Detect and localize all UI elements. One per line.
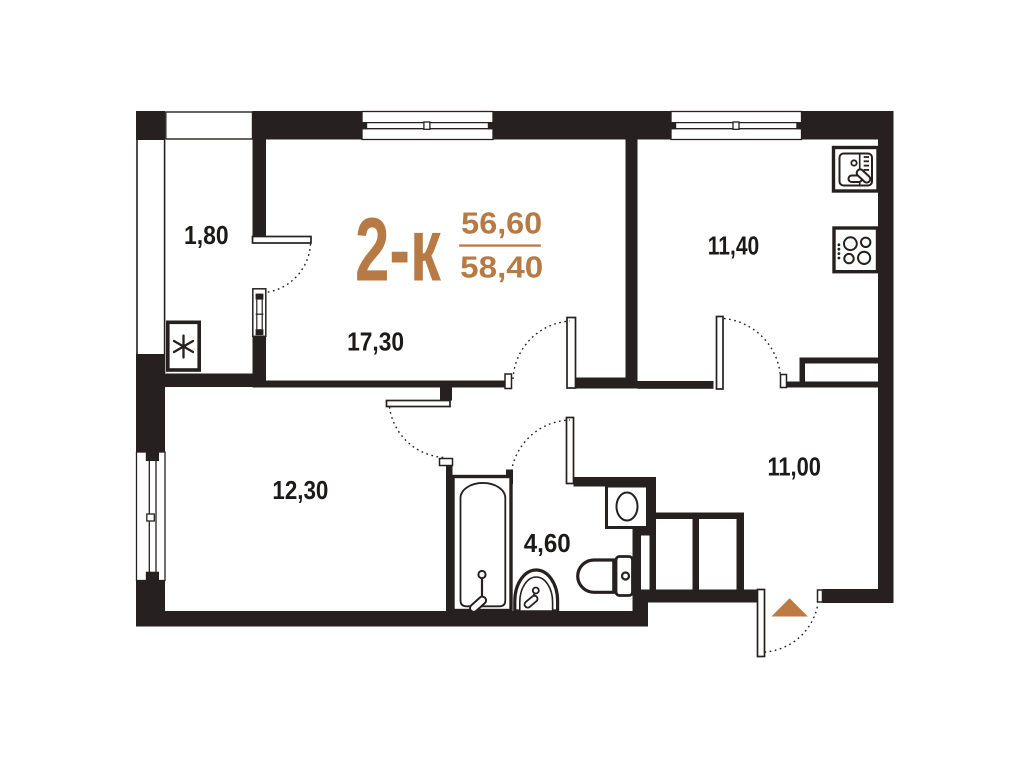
svg-text:4,60: 4,60 <box>524 528 571 558</box>
svg-text:12,30: 12,30 <box>272 475 328 505</box>
svg-text:17,30: 17,30 <box>347 327 404 357</box>
svg-text:56,60: 56,60 <box>461 206 542 241</box>
svg-text:11,40: 11,40 <box>708 231 760 261</box>
svg-text:58,40: 58,40 <box>460 250 543 285</box>
svg-text:1,80: 1,80 <box>184 220 229 250</box>
svg-text:11,00: 11,00 <box>767 452 821 482</box>
svg-text:2-к: 2-к <box>355 201 442 301</box>
